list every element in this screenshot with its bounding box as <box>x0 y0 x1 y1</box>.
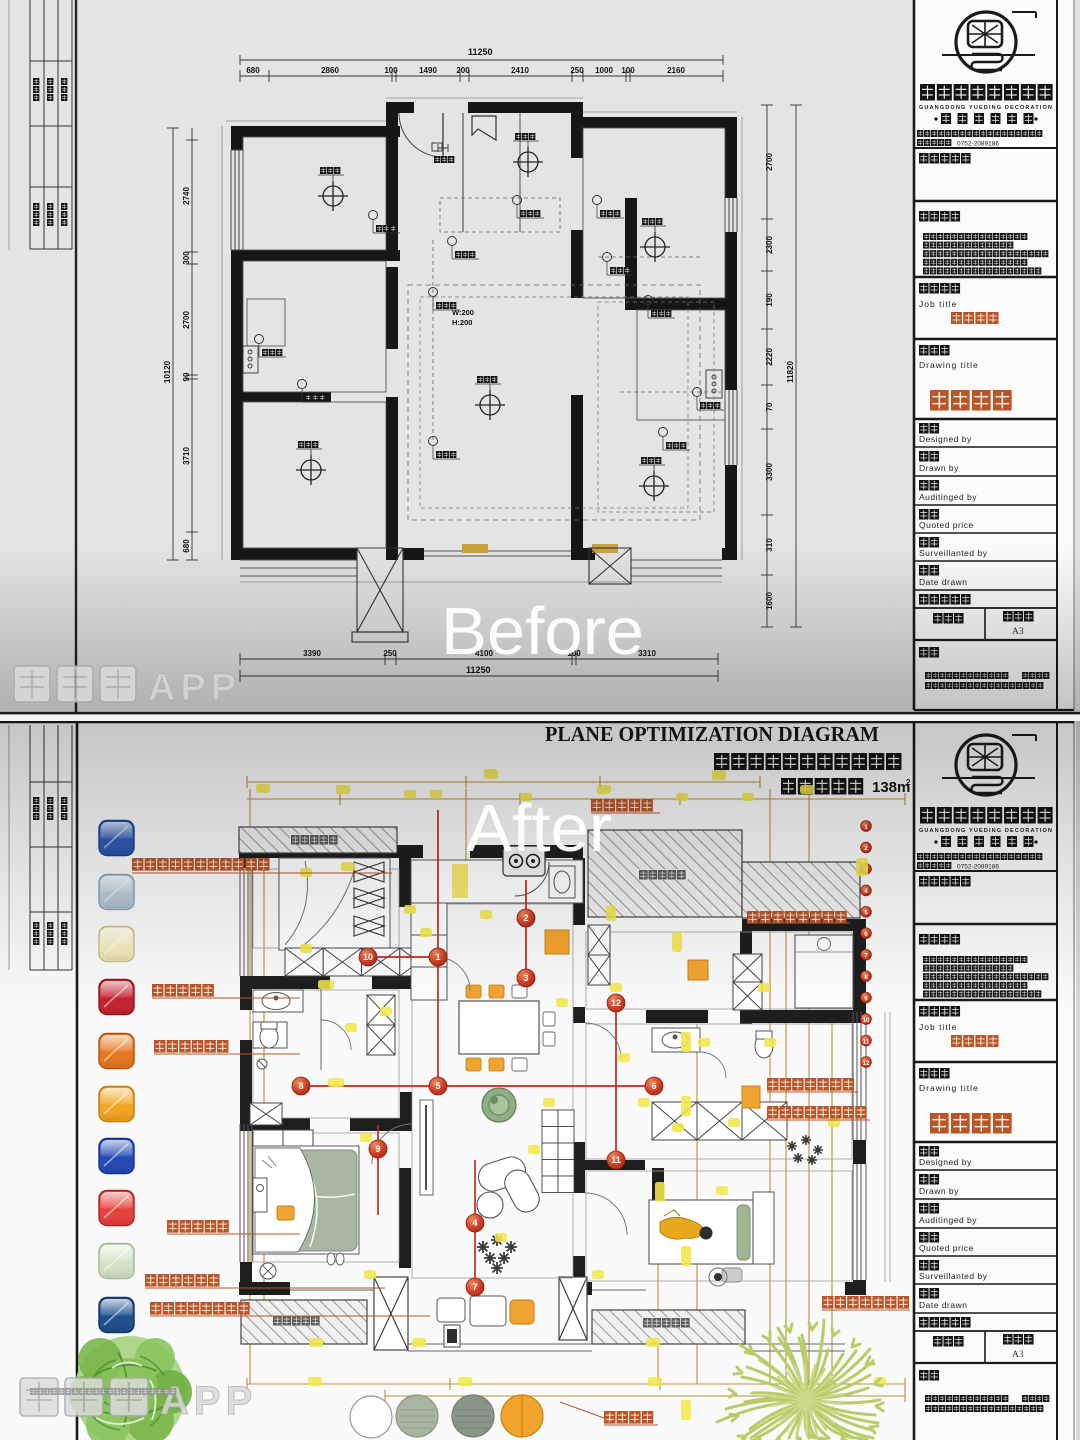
svg-text:3710: 3710 <box>182 447 191 465</box>
svg-text:2740: 2740 <box>182 187 191 205</box>
svg-text:2410: 2410 <box>511 66 529 75</box>
svg-text:11820: 11820 <box>786 361 795 383</box>
svg-text:Quoted price: Quoted price <box>919 1243 974 1253</box>
svg-text:11: 11 <box>863 1038 870 1045</box>
svg-text:11250: 11250 <box>468 47 493 57</box>
svg-text:200: 200 <box>456 66 470 75</box>
svg-text:Date drawn: Date drawn <box>919 1300 967 1310</box>
svg-text:2300: 2300 <box>765 236 774 254</box>
svg-text:GUANGDONG YUEDING DECORATION: GUANGDONG YUEDING DECORATION <box>919 105 1053 111</box>
svg-text:Auditinged by: Auditinged by <box>919 492 977 502</box>
svg-text:Surveillanted by: Surveillanted by <box>919 1271 988 1281</box>
svg-text:7: 7 <box>472 1282 477 1292</box>
svg-text:9: 9 <box>375 1144 380 1154</box>
svg-text:Designed by: Designed by <box>919 1157 972 1167</box>
svg-text:After: After <box>466 791 612 866</box>
svg-text:3300: 3300 <box>765 463 774 481</box>
svg-text:Auditinged by: Auditinged by <box>919 1215 977 1225</box>
svg-text:4: 4 <box>472 1218 477 1228</box>
svg-text:300: 300 <box>182 251 191 265</box>
svg-text:680: 680 <box>246 66 260 75</box>
svg-text:2700: 2700 <box>182 311 191 329</box>
svg-text:Drawn by: Drawn by <box>919 1186 959 1196</box>
svg-text:11: 11 <box>611 1155 621 1165</box>
svg-text:10: 10 <box>862 1017 870 1024</box>
svg-text:12: 12 <box>862 1060 870 1067</box>
svg-text:Designed by: Designed by <box>919 434 972 444</box>
svg-text:70: 70 <box>765 402 774 411</box>
svg-text:A3: A3 <box>1012 1350 1024 1360</box>
svg-text:APP: APP <box>160 1379 257 1423</box>
svg-text:6: 6 <box>651 1081 656 1091</box>
svg-text:0752-2089186: 0752-2089186 <box>957 141 999 148</box>
svg-text:Drawing title: Drawing title <box>919 1083 979 1093</box>
svg-text:Job title: Job title <box>919 1022 957 1032</box>
svg-text:H:200: H:200 <box>452 318 472 327</box>
svg-text:Quoted price: Quoted price <box>919 520 974 530</box>
svg-text:90: 90 <box>182 372 191 381</box>
svg-text:5: 5 <box>435 1081 440 1091</box>
svg-text:Before: Before <box>441 594 644 669</box>
svg-text:250: 250 <box>570 66 584 75</box>
svg-text:1490: 1490 <box>419 66 437 75</box>
svg-text:1000: 1000 <box>595 66 613 75</box>
svg-text:APP: APP <box>148 667 241 709</box>
svg-text:10120: 10120 <box>163 360 172 383</box>
svg-text:Drawing title: Drawing title <box>919 360 979 370</box>
svg-text:2160: 2160 <box>667 66 685 75</box>
svg-text:2700: 2700 <box>765 153 774 171</box>
svg-text:Job title: Job title <box>919 299 957 309</box>
svg-text:100: 100 <box>384 66 398 75</box>
svg-text:100: 100 <box>621 66 635 75</box>
svg-text:W:200: W:200 <box>452 308 474 317</box>
svg-text:2860: 2860 <box>321 66 339 75</box>
svg-text:Drawn by: Drawn by <box>919 463 959 473</box>
svg-text:8: 8 <box>298 1081 303 1091</box>
svg-text:190: 190 <box>765 293 774 307</box>
svg-text:2220: 2220 <box>765 348 774 366</box>
